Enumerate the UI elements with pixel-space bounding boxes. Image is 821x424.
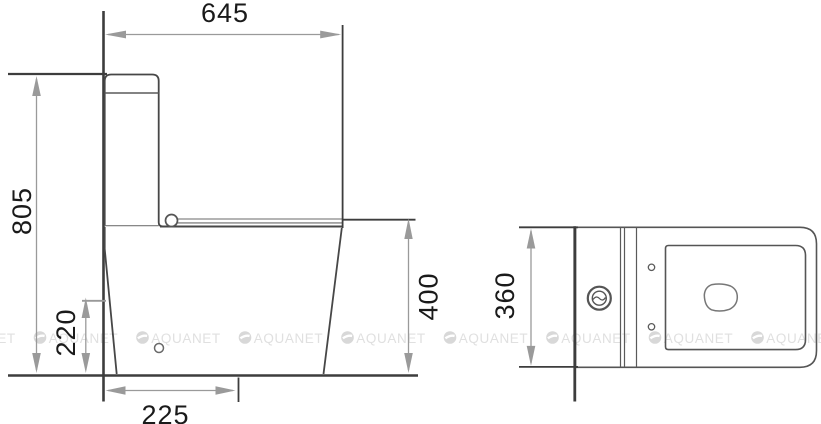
svg-text:AQUANET: AQUANET (254, 331, 323, 346)
svg-text:AQUANET: AQUANET (766, 331, 821, 346)
svg-text:400: 400 (413, 272, 443, 320)
svg-text:AQUANET: AQUANET (459, 331, 528, 346)
svg-text:AQUANET: AQUANET (0, 331, 16, 346)
svg-text:225: 225 (141, 400, 189, 424)
svg-text:220: 220 (51, 308, 81, 356)
svg-text:AQUANET: AQUANET (356, 331, 425, 346)
svg-text:645: 645 (201, 0, 249, 28)
svg-text:AQUANET: AQUANET (664, 331, 733, 346)
svg-text:805: 805 (7, 187, 37, 235)
svg-text:360: 360 (490, 271, 520, 319)
